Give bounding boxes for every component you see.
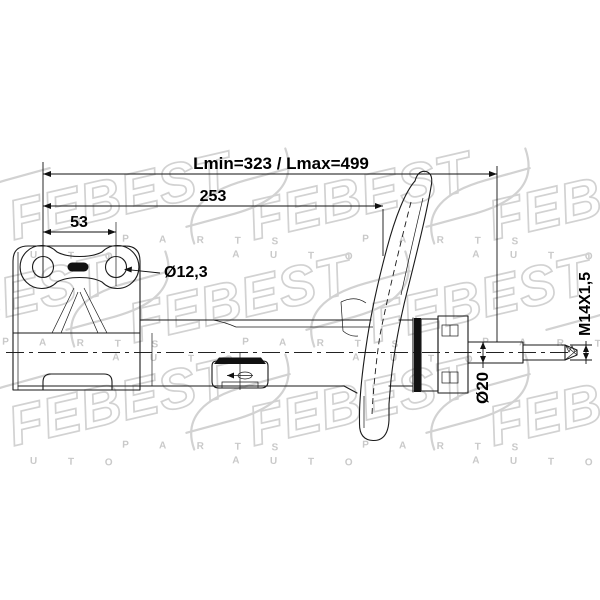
dim-rod-diameter: Ø20 — [473, 342, 492, 404]
dim-hole-diameter: Ø12,3 — [124, 264, 208, 281]
dim-overall-length-label: Lmin=323 / Lmax=499 — [193, 154, 369, 173]
dim-thread-spec-label: M14X1,5 — [577, 272, 594, 336]
strut-technical-drawing: FEBEST A U T O P A R T S FEBEST A U T O … — [0, 0, 600, 600]
watermark-layer: FEBEST A U T O P A R T S FEBEST A U T O … — [0, 115, 600, 527]
watermark-logo-text: FEBEST — [482, 138, 600, 251]
center-slot — [68, 263, 89, 272]
dim-hole-diameter-label: Ø12,3 — [164, 264, 208, 281]
watermark-auto-text: A U T O — [0, 455, 127, 468]
drawing-canvas: FEBEST A U T O P A R T S FEBEST A U T O … — [0, 0, 600, 600]
watermark-parts-text: P A R T S — [482, 337, 600, 351]
watermark-auto-text: A U T O — [472, 455, 600, 468]
watermark-logo-text: FEBEST — [482, 344, 600, 457]
dim-hole-spacing-label: 53 — [70, 214, 88, 231]
dim-rod-diameter-label: Ø20 — [473, 372, 492, 404]
watermark-auto-text: A U T O — [232, 455, 366, 468]
bump-stop-cap — [214, 358, 266, 365]
dim-body-length-label: 253 — [200, 188, 227, 205]
gland-nut-band — [414, 318, 421, 392]
